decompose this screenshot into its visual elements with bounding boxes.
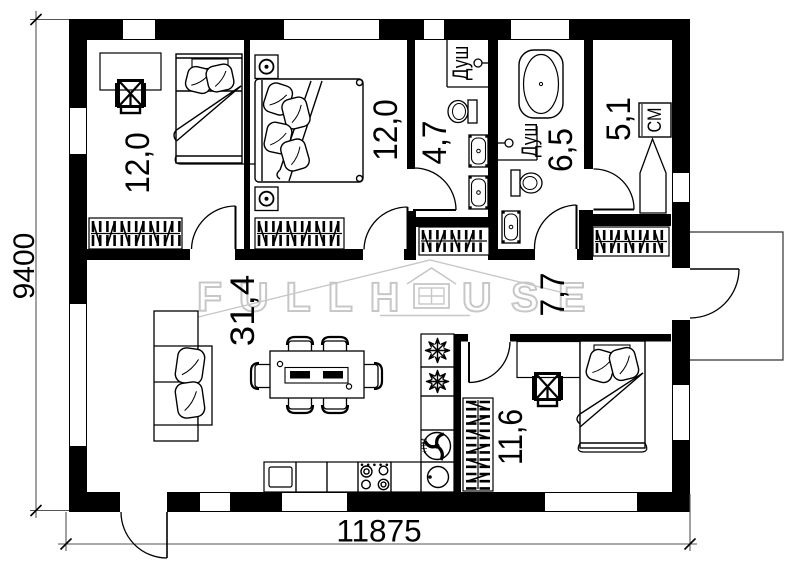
svg-text:+ПМ: +ПМ [420,438,429,453]
svg-text:12,0: 12,0 [366,99,404,161]
svg-text:9400: 9400 [8,233,41,300]
svg-text:11,6: 11,6 [491,409,529,465]
svg-text:12,0: 12,0 [118,132,156,194]
svg-text:Душ: Душ [518,123,543,157]
svg-text:31,4: 31,4 [224,275,261,346]
svg-text:6,5: 6,5 [541,128,579,172]
svg-text:Душ: Душ [449,46,474,80]
svg-text:5,1: 5,1 [599,97,637,141]
svg-text:7,7: 7,7 [533,273,571,317]
svg-text:11875: 11875 [336,513,421,549]
svg-text:4,7: 4,7 [415,121,453,165]
svg-text:СМ: СМ [644,108,666,133]
